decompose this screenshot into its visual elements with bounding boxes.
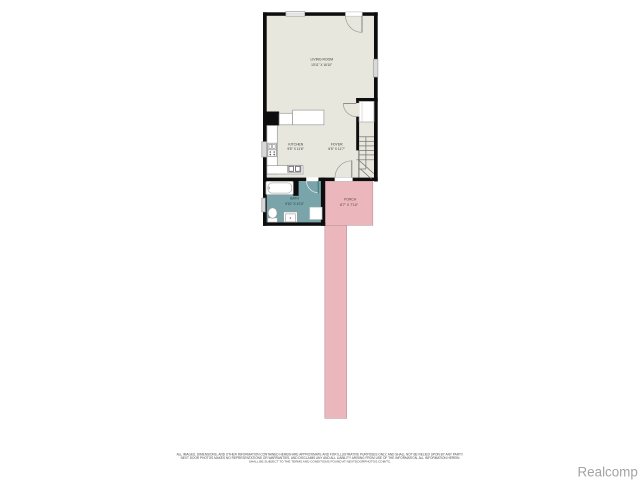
svg-text:9'5" X 11'6": 9'5" X 11'6" (287, 147, 304, 151)
svg-text:FOYER: FOYER (331, 143, 343, 147)
svg-text:8'7" X 7'10": 8'7" X 7'10" (340, 203, 359, 207)
svg-text:10'11" X 16'10": 10'11" X 16'10" (311, 63, 332, 67)
svg-text:9'10" X 4'10": 9'10" X 4'10" (285, 202, 304, 206)
svg-text:SHALL BE SUBJECT TO THE TERMS: SHALL BE SUBJECT TO THE TERMS AND CONDIT… (249, 460, 391, 464)
svg-text:BATH: BATH (290, 197, 299, 201)
svg-text:KITCHEN: KITCHEN (288, 143, 303, 147)
svg-text:PORCH: PORCH (344, 197, 357, 201)
svg-text:6'5" X 11'7": 6'5" X 11'7" (328, 147, 345, 151)
svg-text:Realcomp: Realcomp (578, 464, 638, 479)
svg-text:LIVING ROOM: LIVING ROOM (310, 57, 333, 61)
